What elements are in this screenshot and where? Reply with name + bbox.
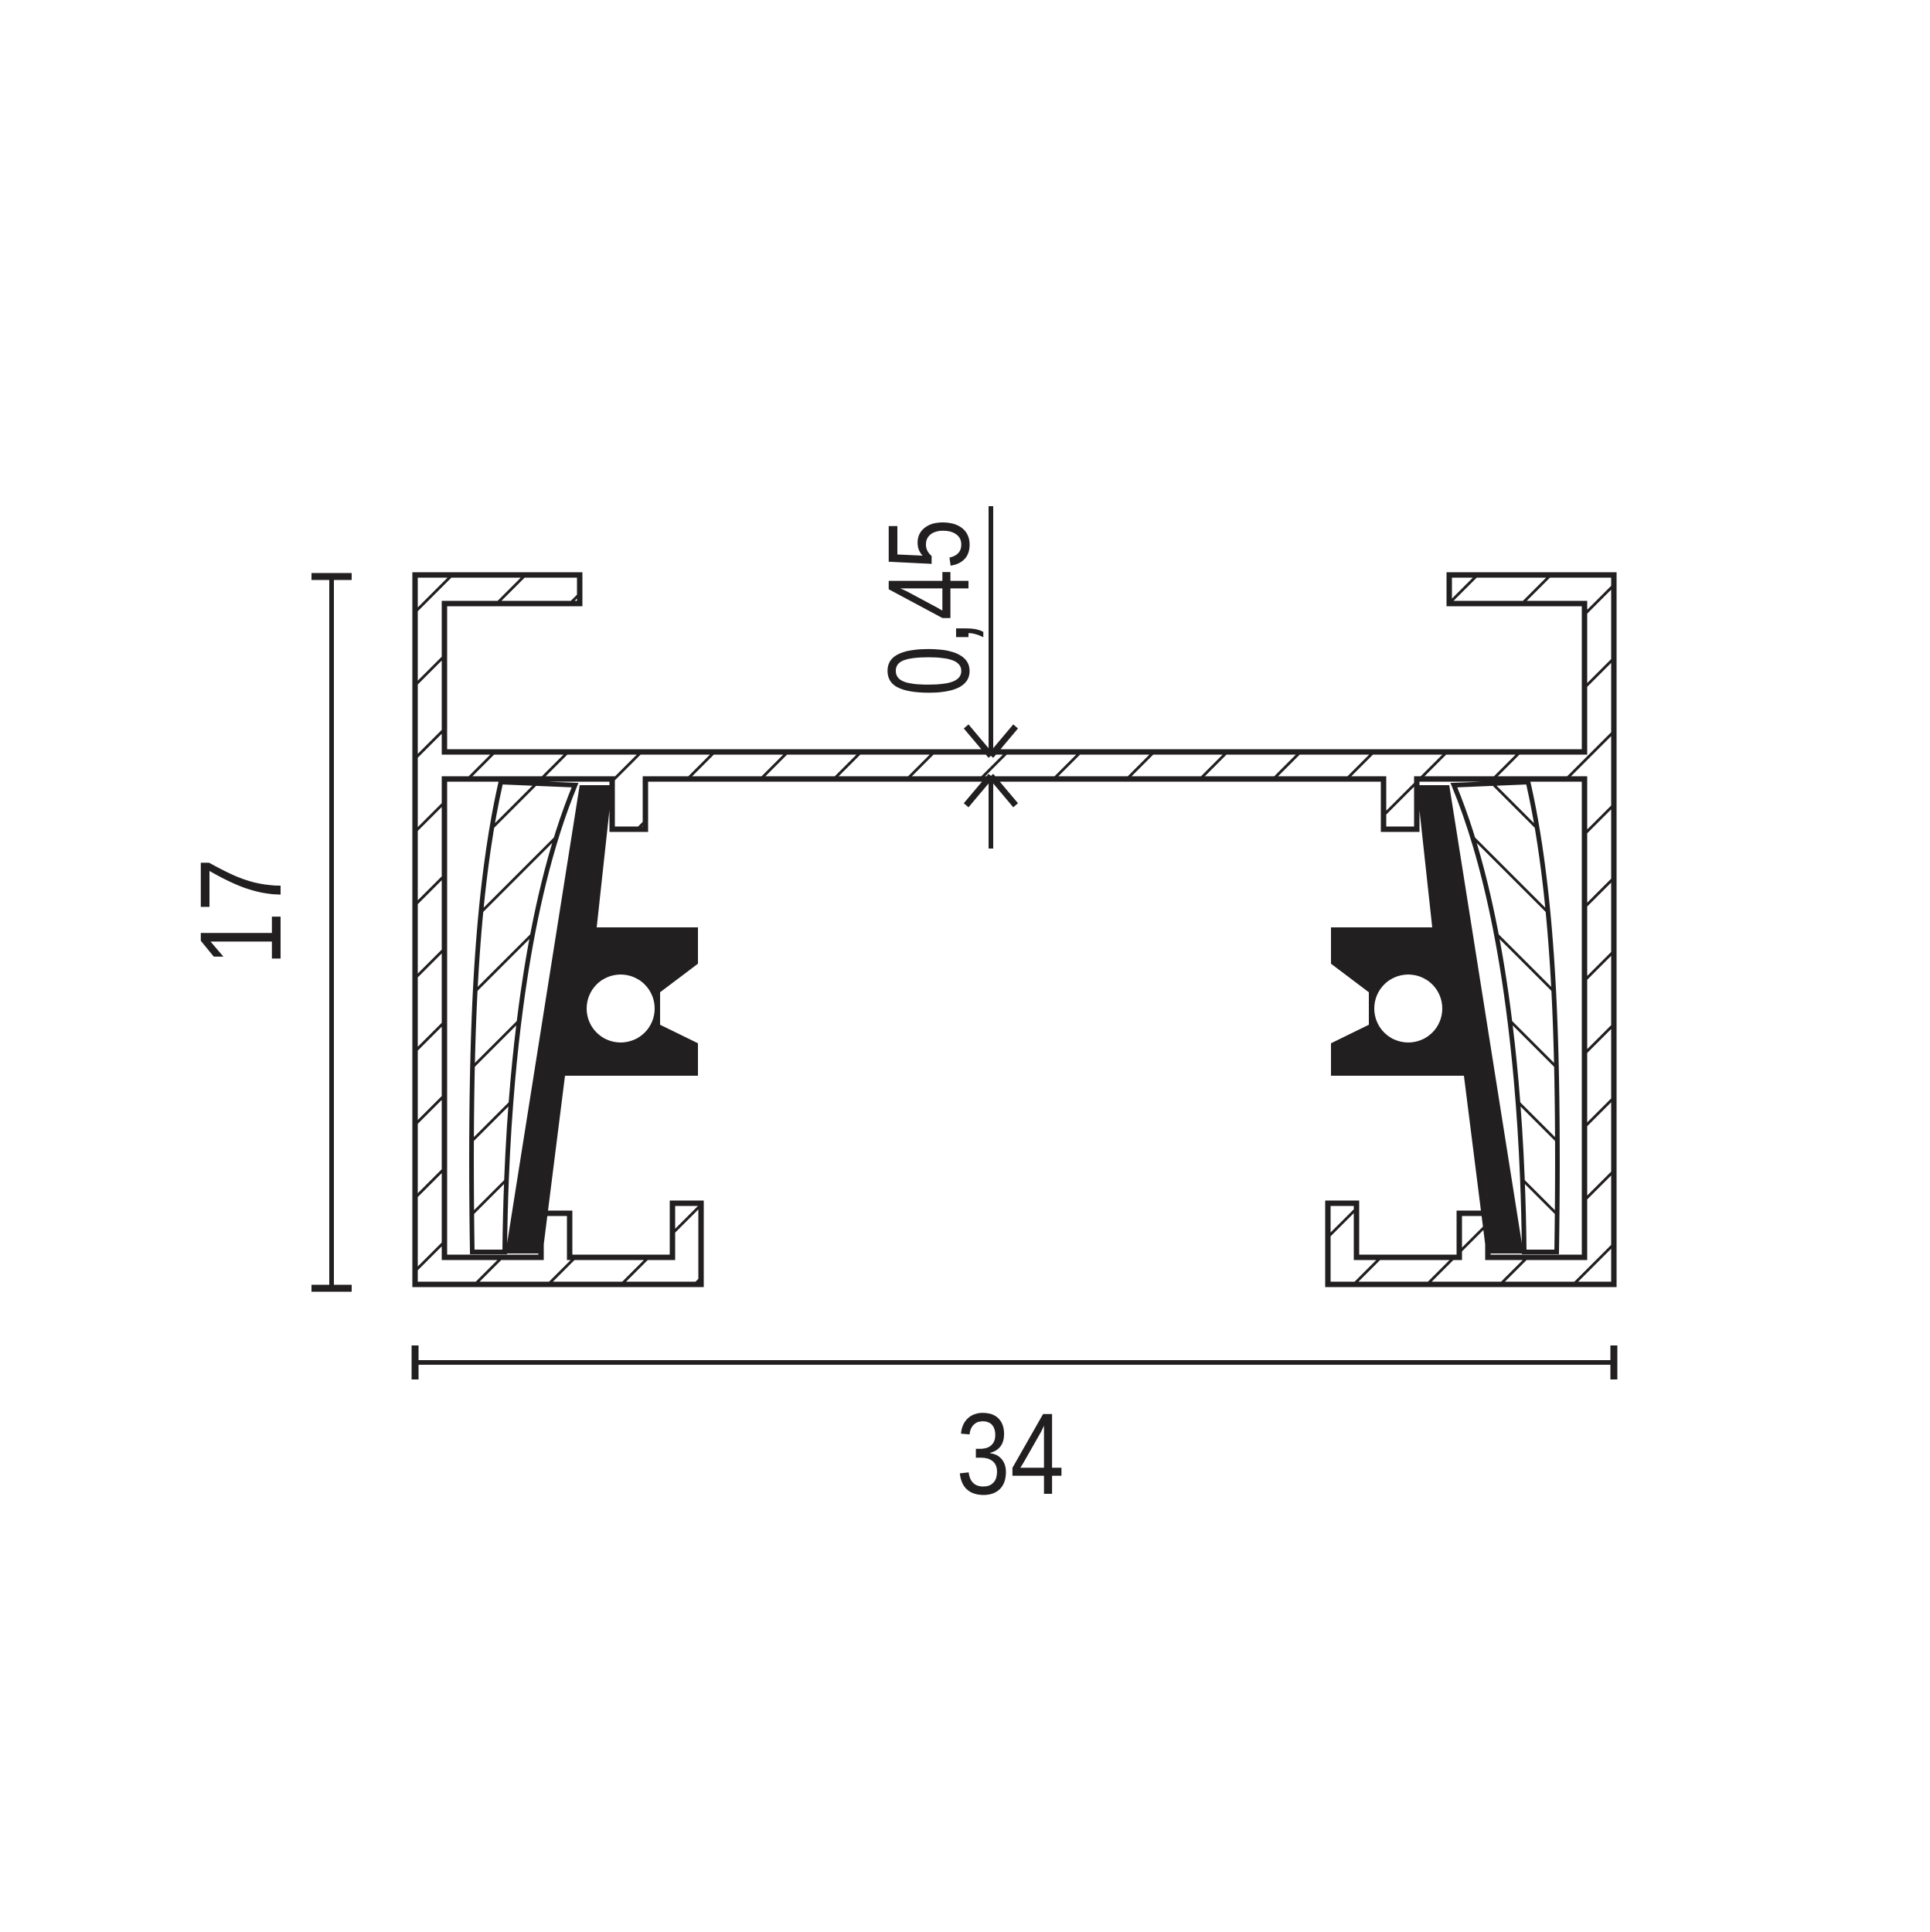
drawing-sheet: 17 0,45 34	[0, 0, 1930, 1932]
width-dimension-label: 34	[956, 1389, 1064, 1519]
profile-cross-section-drawing: 17 0,45 34	[0, 0, 1930, 1932]
dimension-height: 17	[175, 577, 352, 1288]
dimension-web-thickness: 0,45	[863, 506, 1016, 849]
web-thickness-label: 0,45	[863, 519, 993, 696]
dimension-width: 34	[415, 1345, 1614, 1519]
height-dimension-label: 17	[175, 858, 305, 966]
